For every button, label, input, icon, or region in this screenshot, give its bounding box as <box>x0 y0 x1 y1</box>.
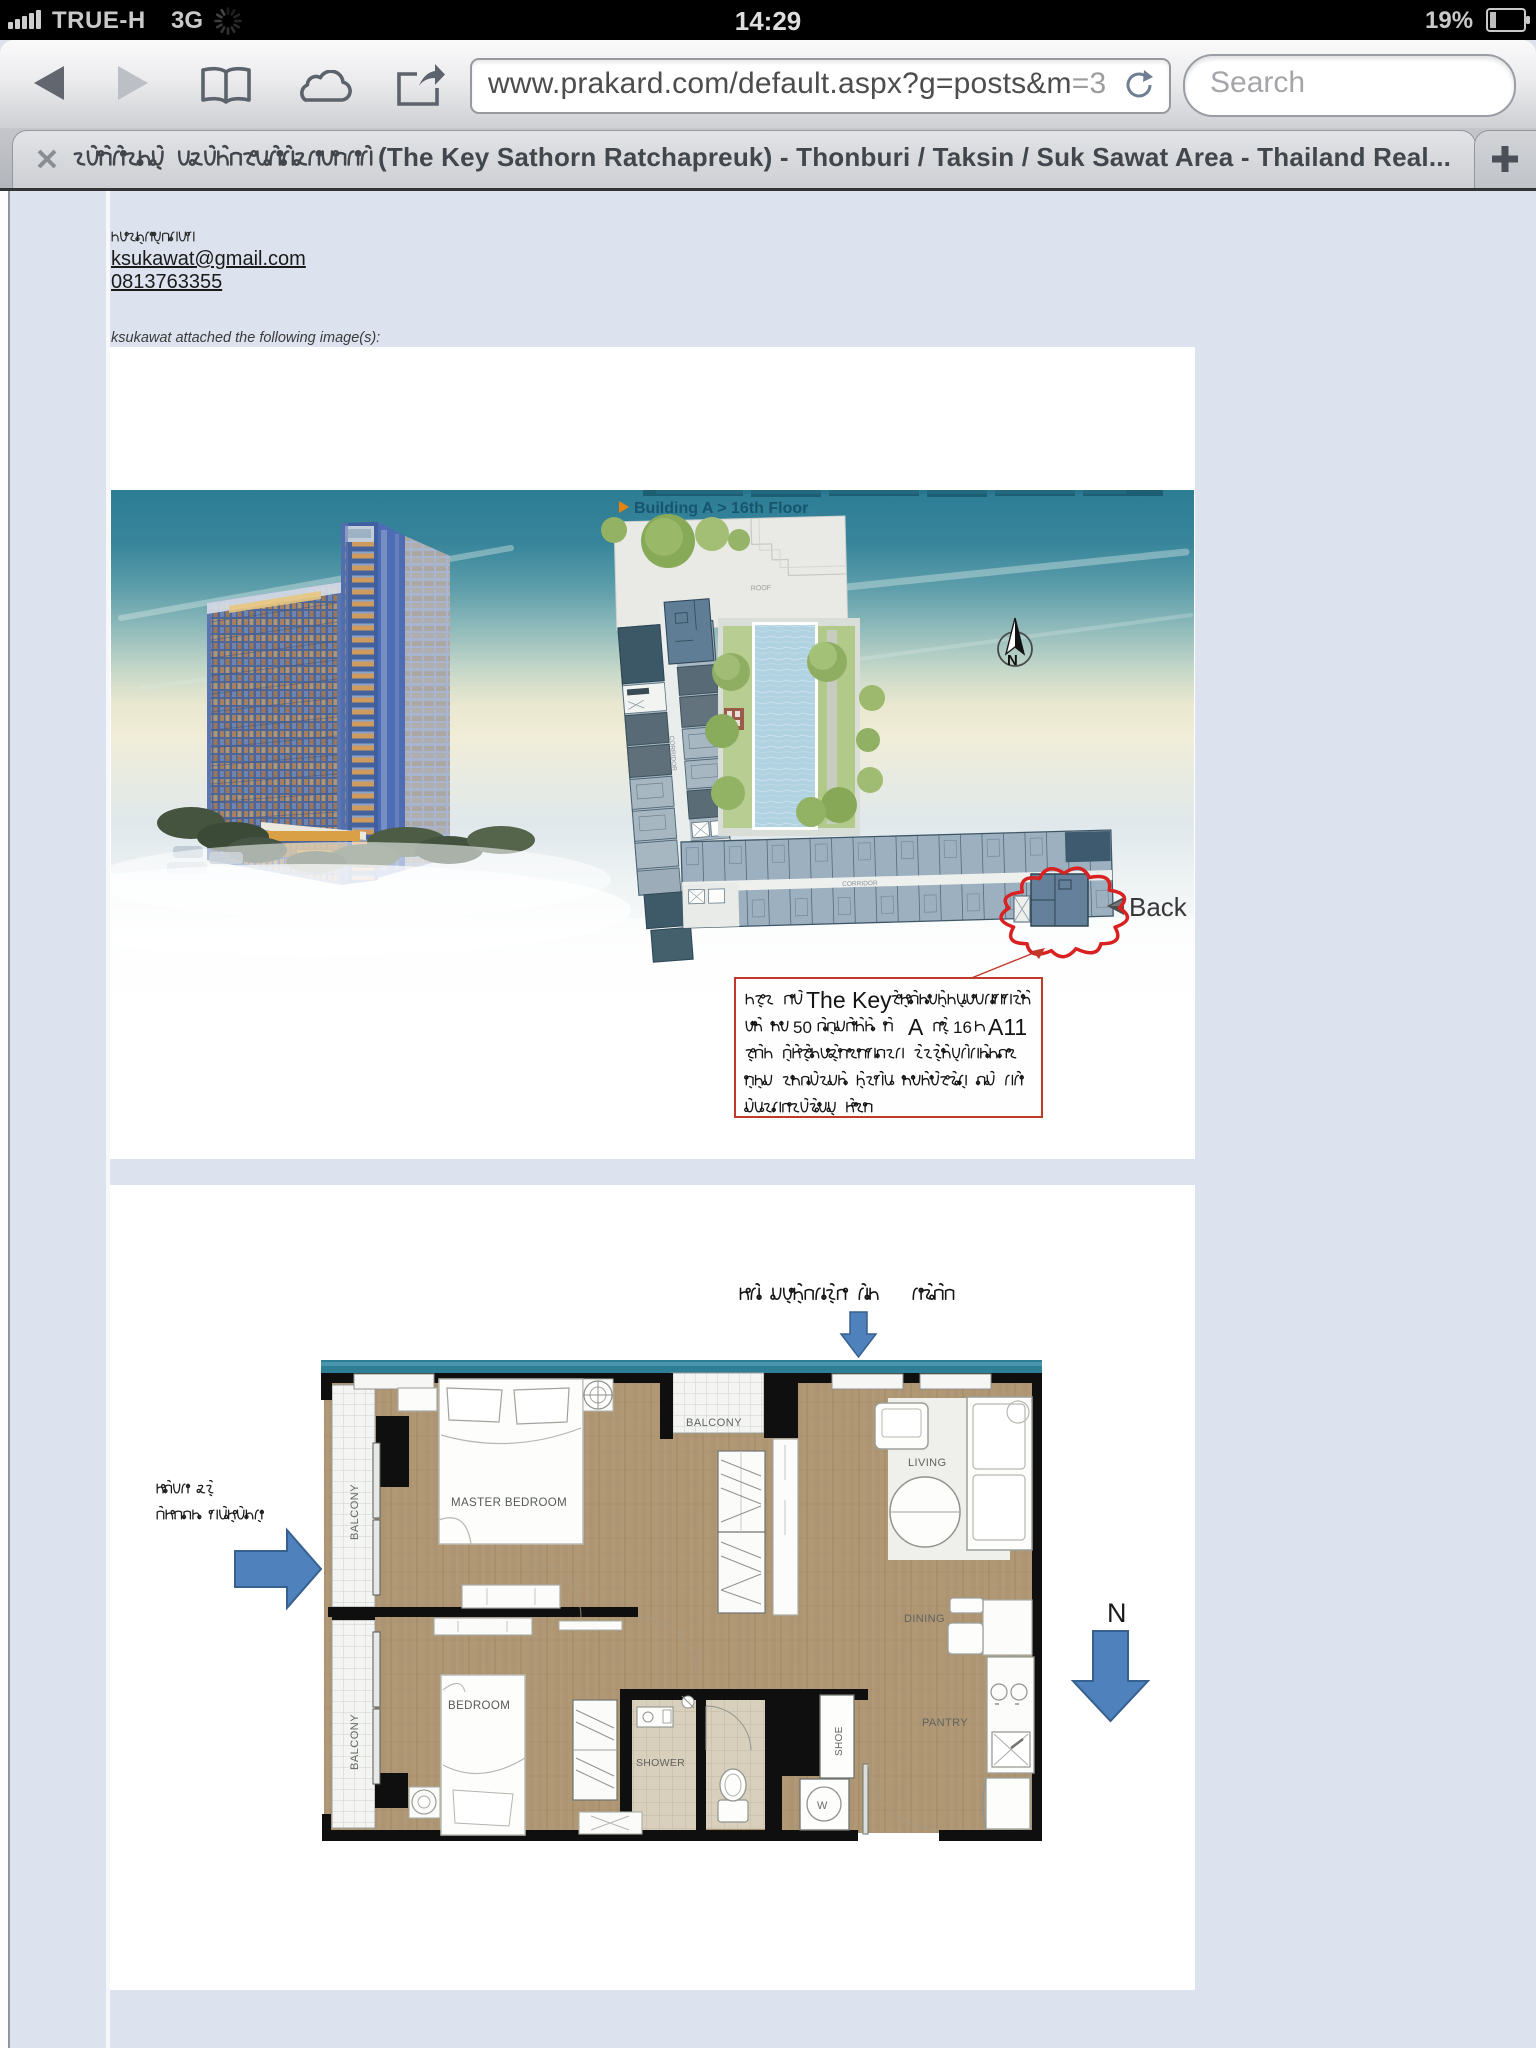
svg-text:PANTRY: PANTRY <box>922 1717 968 1729</box>
svg-text:N: N <box>1007 652 1018 669</box>
svg-text:50: 50 <box>793 1018 812 1037</box>
svg-text:Back: Back <box>1129 892 1188 922</box>
svg-text:SHOE: SHOE <box>834 1726 845 1756</box>
svg-text:DINING: DINING <box>904 1613 945 1625</box>
svg-text:N: N <box>1107 1598 1127 1628</box>
svg-text:Building A > 16th Floor: Building A > 16th Floor <box>634 500 808 517</box>
svg-text:LIVING: LIVING <box>908 1457 946 1469</box>
svg-text:The Key: The Key <box>806 987 892 1013</box>
svg-text:CORRIDOR: CORRIDOR <box>842 880 878 888</box>
svg-text:BALCONY: BALCONY <box>349 1484 361 1540</box>
svg-text:BALCONY: BALCONY <box>349 1714 361 1770</box>
svg-text:SHOWER: SHOWER <box>636 1757 685 1769</box>
svg-text:MASTER BEDROOM: MASTER BEDROOM <box>451 1497 567 1509</box>
svg-text:A11: A11 <box>988 1014 1027 1040</box>
svg-text:A: A <box>908 1014 924 1040</box>
svg-text:16: 16 <box>953 1018 972 1037</box>
svg-text:BALCONY: BALCONY <box>686 1417 742 1429</box>
svg-text:ROOF: ROOF <box>751 585 771 593</box>
svg-text:BEDROOM: BEDROOM <box>448 1700 510 1712</box>
svg-text:W: W <box>817 1800 828 1812</box>
